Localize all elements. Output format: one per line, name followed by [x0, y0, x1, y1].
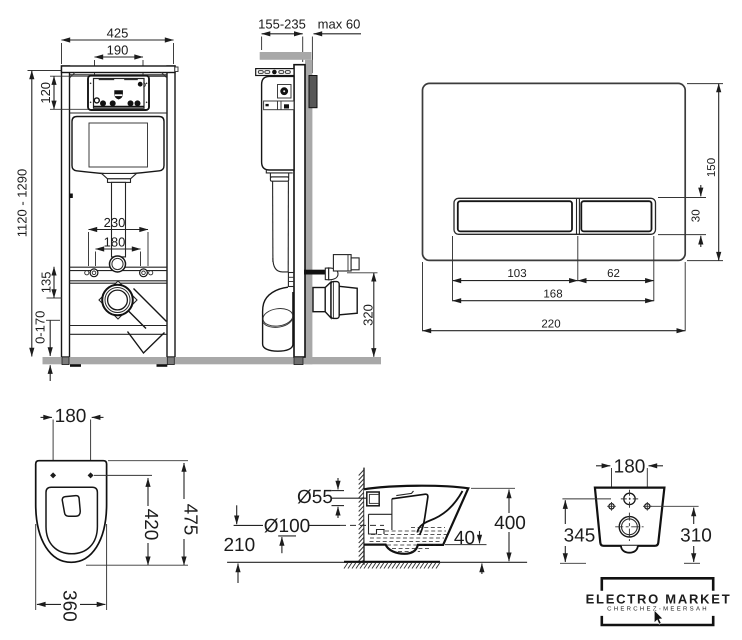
svg-text:210: 210 — [223, 535, 255, 556]
svg-text:CHERCHEZ-MEERSAH: CHERCHEZ-MEERSAH — [607, 606, 709, 613]
svg-text:168: 168 — [543, 288, 562, 300]
svg-text:30: 30 — [691, 209, 703, 222]
svg-text:420: 420 — [140, 509, 161, 541]
svg-text:180: 180 — [55, 406, 87, 427]
svg-text:ELECTRO MARKET: ELECTRO MARKET — [586, 592, 732, 607]
svg-text:120: 120 — [38, 82, 53, 104]
svg-text:150: 150 — [706, 158, 718, 177]
svg-text:345: 345 — [564, 526, 596, 547]
svg-text:180: 180 — [104, 235, 126, 250]
svg-text:310: 310 — [680, 526, 712, 547]
svg-text:1120 - 1290: 1120 - 1290 — [15, 169, 30, 237]
svg-text:135: 135 — [38, 272, 53, 294]
svg-text:425: 425 — [107, 26, 129, 41]
svg-text:max 60: max 60 — [318, 17, 361, 32]
svg-text:400: 400 — [494, 513, 526, 534]
svg-text:230: 230 — [104, 215, 126, 230]
svg-text:103: 103 — [507, 268, 526, 280]
svg-text:Ø55: Ø55 — [297, 487, 333, 508]
svg-text:0-170: 0-170 — [33, 311, 48, 344]
svg-text:40: 40 — [454, 528, 475, 549]
svg-text:155-235: 155-235 — [258, 17, 306, 32]
svg-text:62: 62 — [607, 268, 620, 280]
svg-text:220: 220 — [541, 318, 560, 330]
svg-text:190: 190 — [107, 43, 129, 58]
svg-text:Ø100: Ø100 — [264, 516, 310, 537]
svg-text:180: 180 — [614, 457, 646, 478]
svg-text:320: 320 — [361, 304, 376, 326]
svg-text:475: 475 — [180, 504, 201, 536]
svg-text:360: 360 — [58, 590, 79, 622]
